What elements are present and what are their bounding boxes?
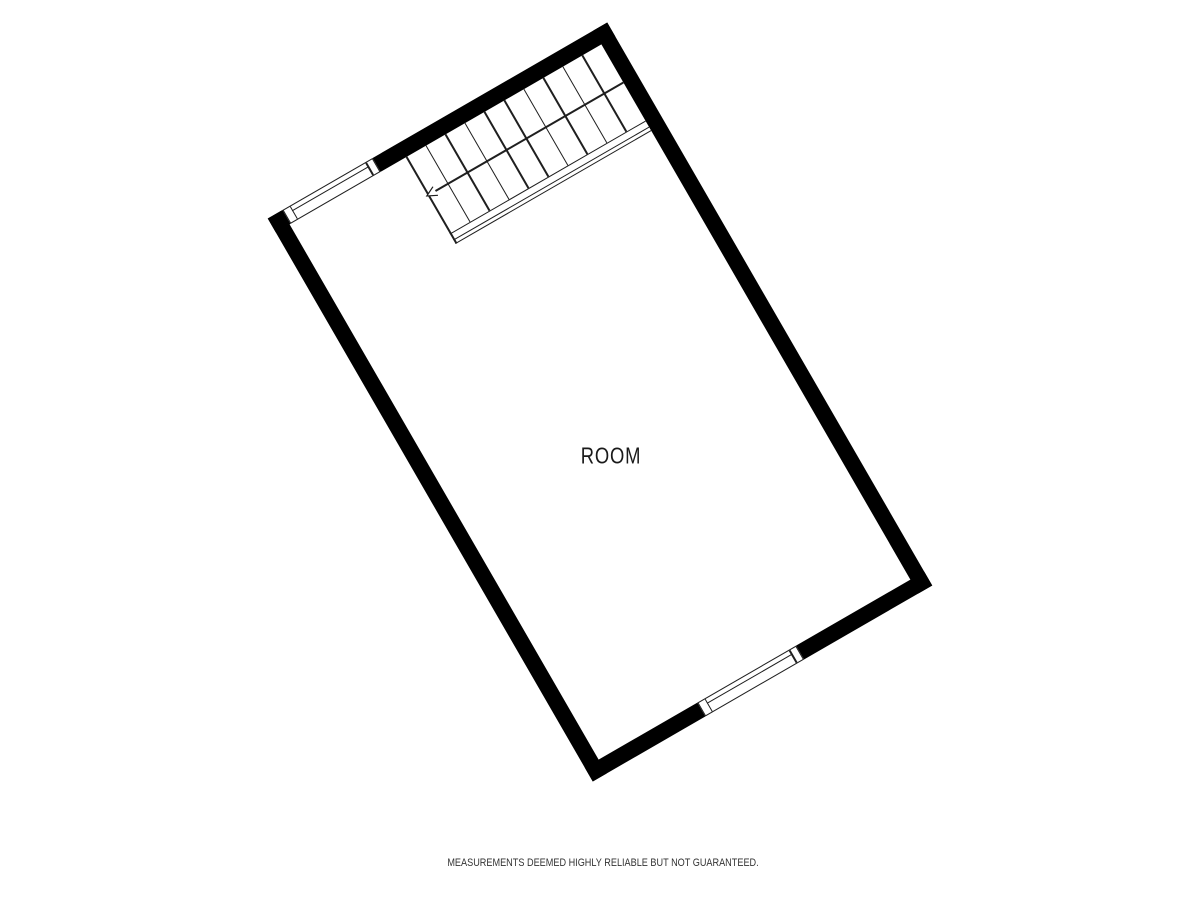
stair-stringer-line [450,121,646,235]
room-outline [268,23,932,782]
floorplan-canvas: ROOM MEASUREMENTS DEEMED HIGHLY RELIABLE… [0,0,1200,900]
stair-treads [406,44,602,157]
stair-rail-line [455,130,651,244]
room-label: ROOM [573,443,649,470]
window-lower-right-wall [697,646,804,717]
window-end-cap [789,650,797,663]
window-glass-line [292,167,369,212]
wall-lower-left [268,211,607,782]
window-end-cap [365,163,373,176]
window-upper-left-wall [282,158,380,224]
window-glass-line [707,654,793,704]
wall-upper-right [593,23,932,594]
disclaimer-text: MEASUREMENTS DEEMED HIGHLY RELIABLE BUT … [415,857,790,869]
stair-rail-line [453,127,649,241]
